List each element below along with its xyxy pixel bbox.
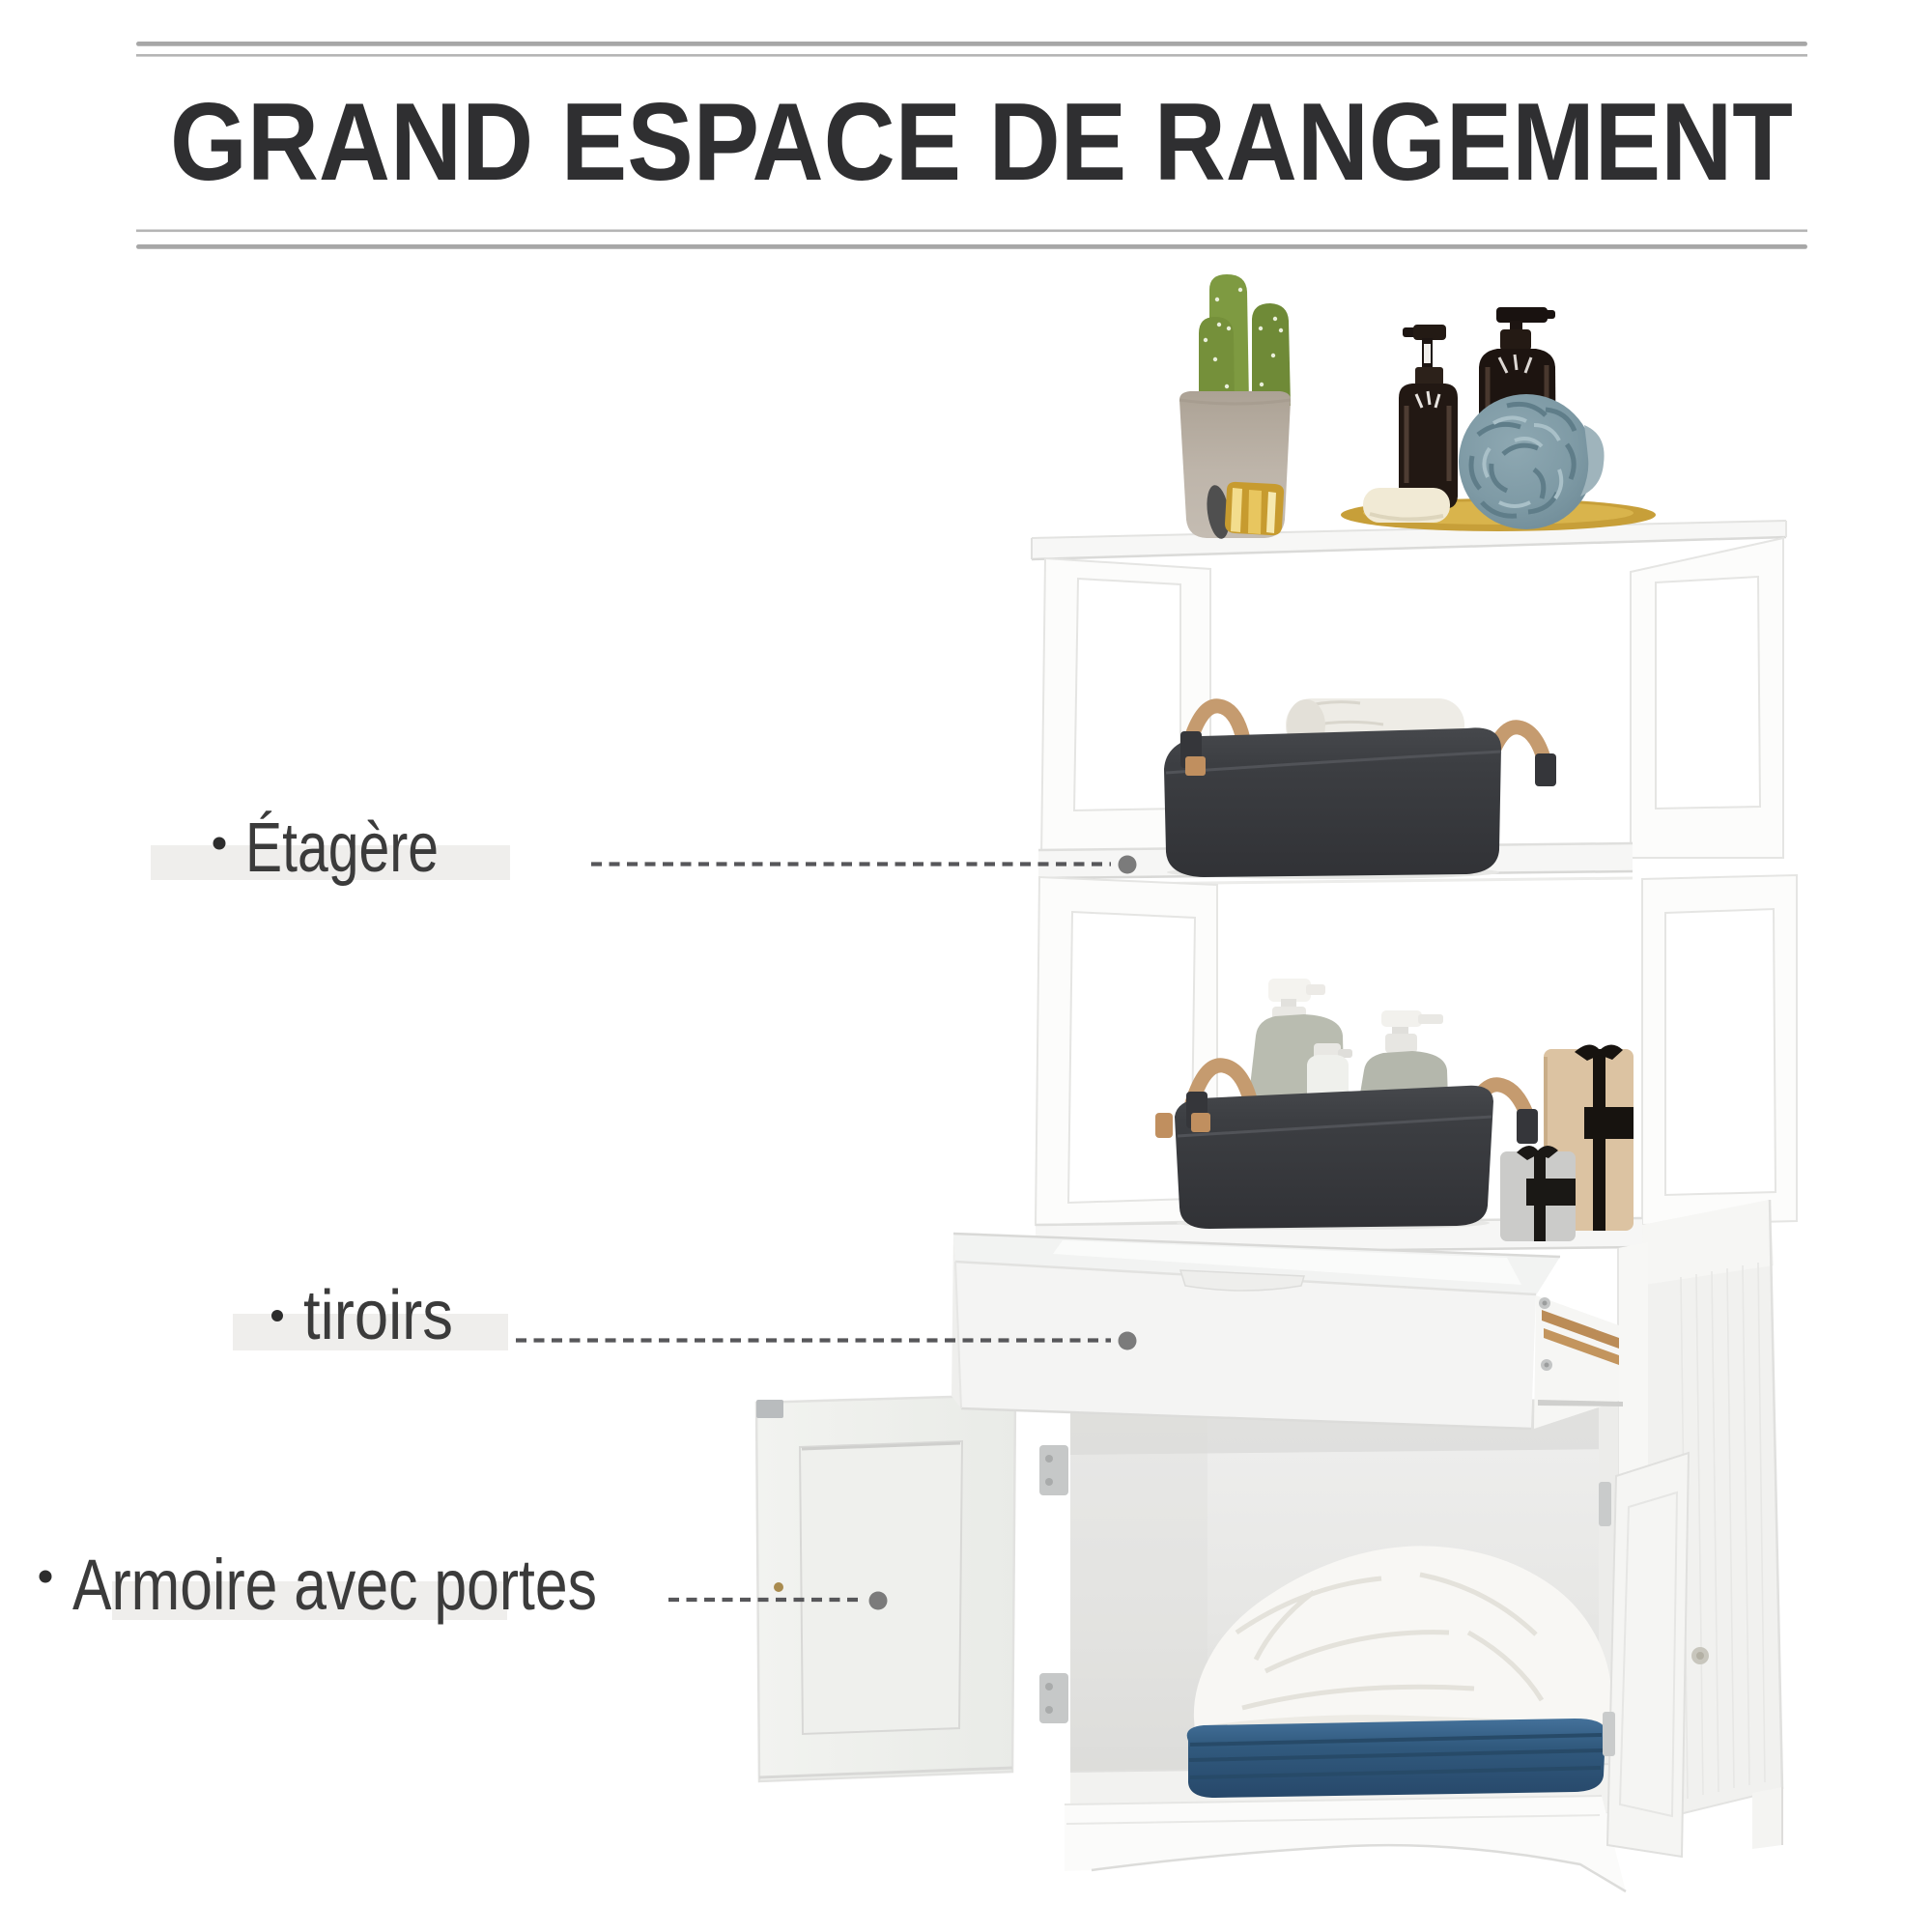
svg-text:Étagère: Étagère [245,810,439,887]
svg-text:GRAND ESPACE DE RANGEMENT: GRAND ESPACE DE RANGEMENT [170,81,1793,204]
svg-text:Armoire avec portes: Armoire avec portes [72,1545,597,1625]
svg-text:tiroirs: tiroirs [303,1277,453,1354]
